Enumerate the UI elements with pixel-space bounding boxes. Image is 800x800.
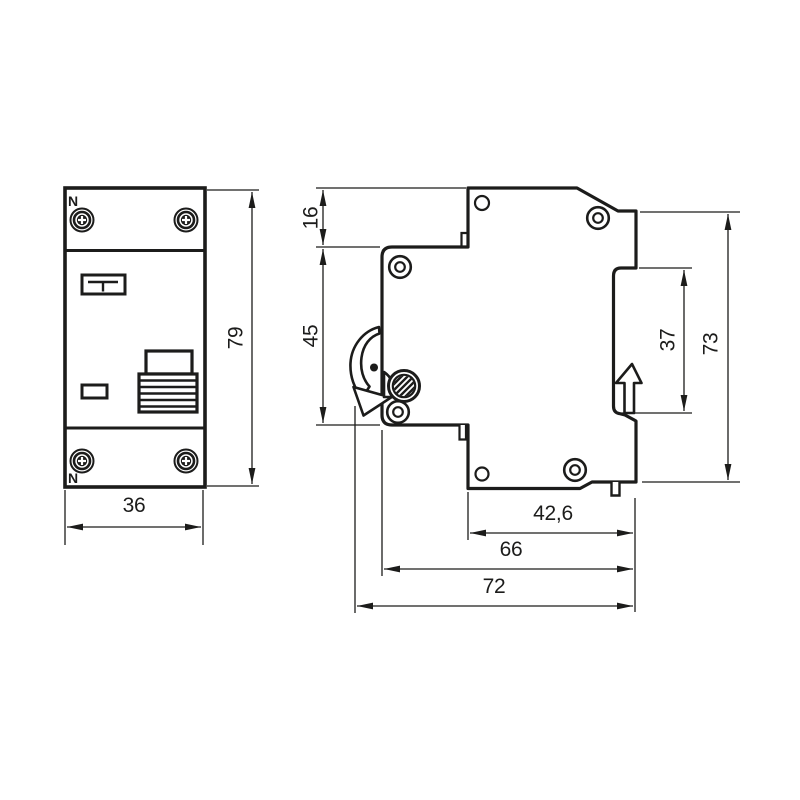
dim-42-6-label: 42,6 [533,502,573,525]
screw-terminal-icon [175,209,198,232]
test-button [82,275,125,294]
technical-drawing: 79 36 16 45 37 73 42,6 66 [0,0,800,800]
dim-side-back-height: 73 [640,212,740,482]
mounting-hole [476,468,489,481]
rivet-icon [587,207,609,229]
front-view: N N [65,188,205,487]
screw-terminal-icon [175,450,198,473]
dim-front-height: 79 [207,190,259,486]
dim-side-top-step: 16 [300,188,467,247]
rivet-icon [387,401,409,423]
rivet-icon [389,256,411,278]
din-clip-arrow [616,364,642,413]
toggle-switch-handle [146,351,192,374]
dim-45-label: 45 [300,325,323,348]
mounting-hole [475,196,489,210]
side-view [350,188,641,496]
dim-73-label: 73 [700,333,723,356]
rivet-icon [564,459,586,481]
breaker-body-side [382,188,636,489]
lever-pivot [370,364,378,372]
dim-72-label: 72 [483,575,506,598]
screw-terminal-icon [71,209,94,232]
dim-66-label: 66 [500,538,523,561]
dim-16-label: 16 [300,207,323,230]
dim-79-label: 79 [225,327,248,350]
mould-tick [460,425,467,440]
breaker-body-front [65,188,205,487]
bottom-tab [612,482,620,496]
neutral-label-top: N [68,193,78,209]
dim-front-width: 36 [65,490,203,545]
dim-36-label: 36 [123,494,146,517]
indicator-window [82,385,107,398]
dim-37-label: 37 [657,329,680,352]
screw-terminal-icon [71,450,94,473]
neutral-label-bottom: N [68,470,78,486]
toggle-switch [139,351,197,412]
drawing-canvas: 79 36 16 45 37 73 42,6 66 [0,0,800,800]
